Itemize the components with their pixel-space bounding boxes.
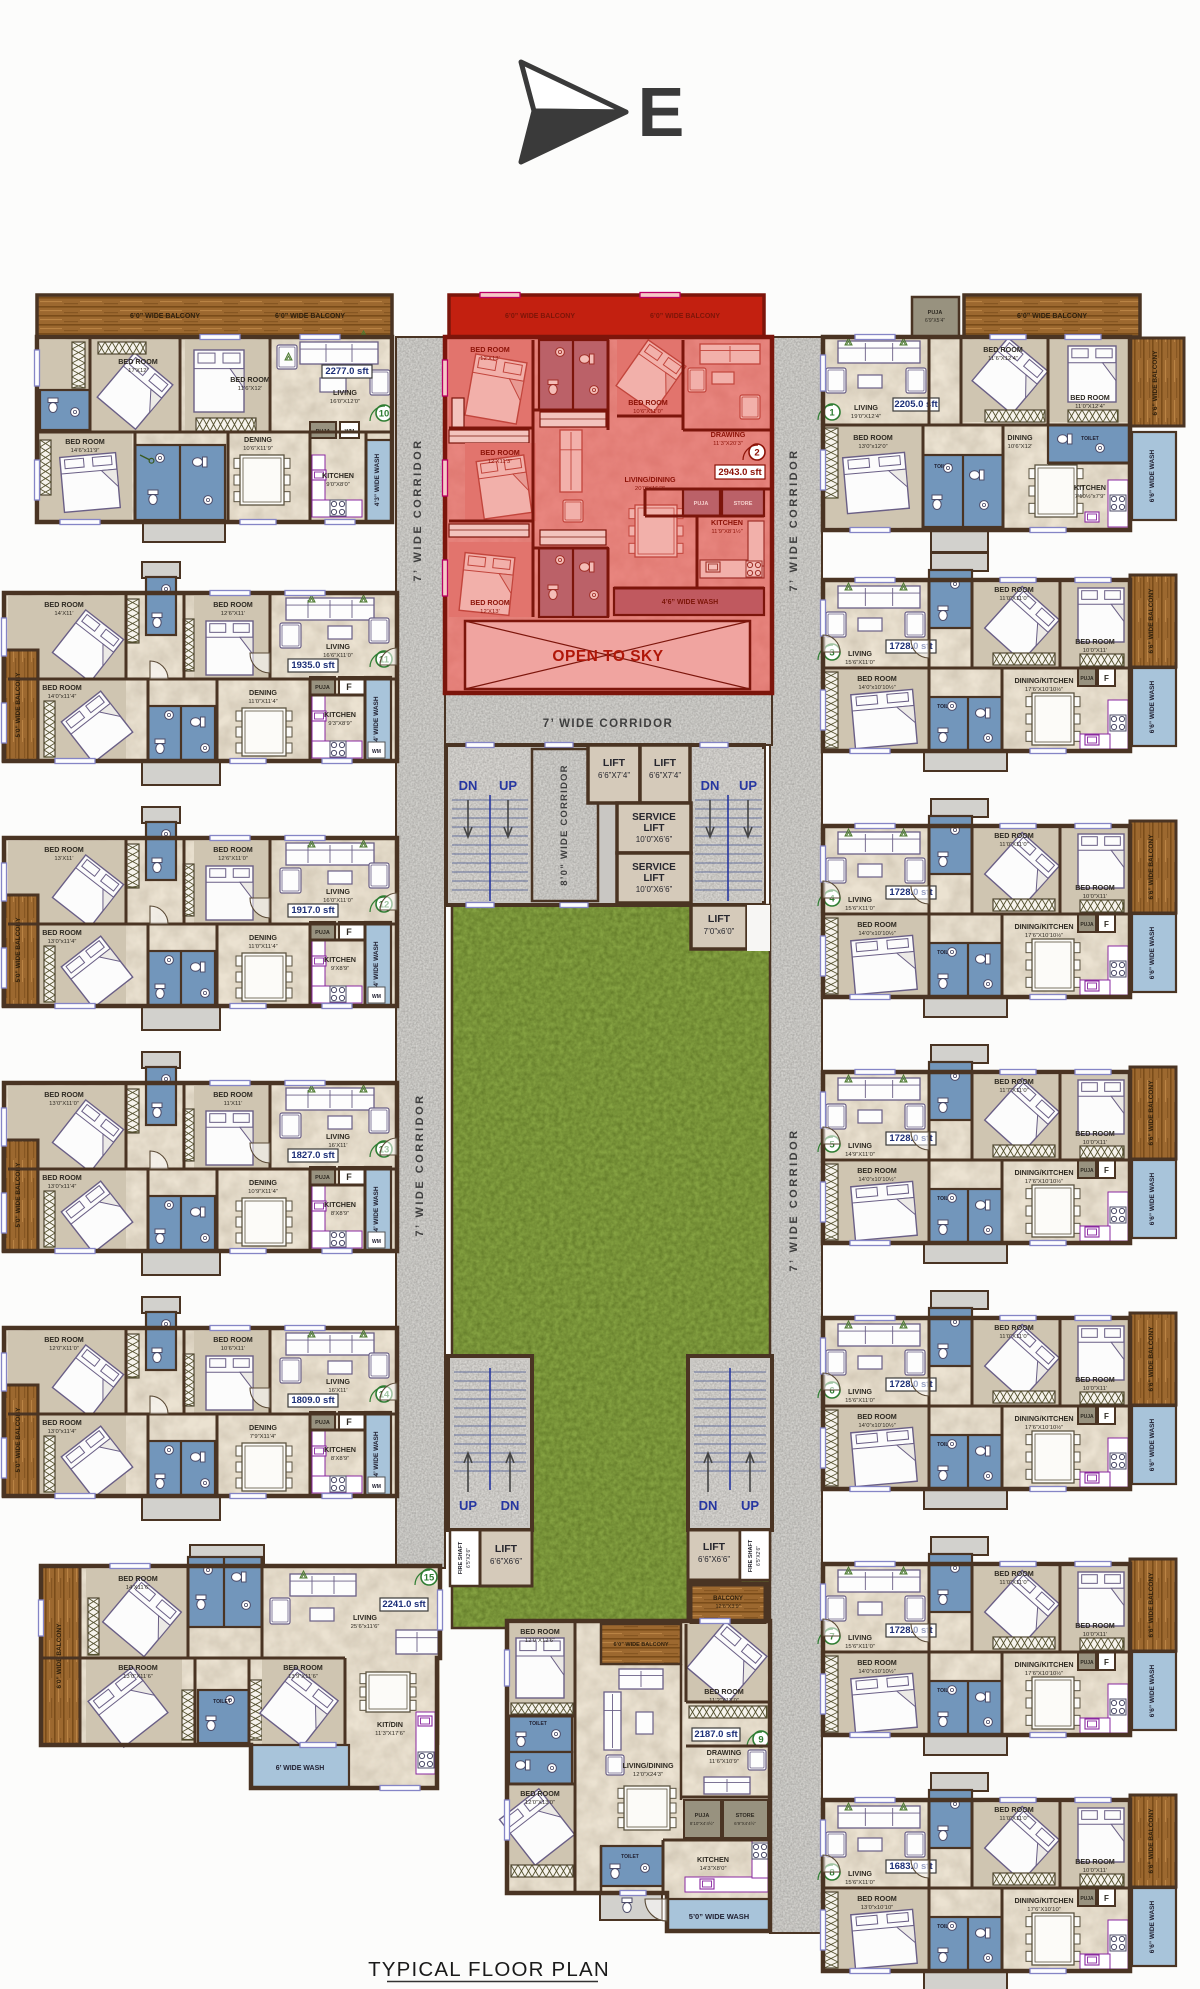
svg-text:BED ROOM: BED ROOM — [857, 1894, 897, 1903]
svg-text:LIVING: LIVING — [848, 895, 872, 904]
svg-text:14’0”x10’10½”: 14’0”x10’10½” — [858, 1668, 895, 1675]
svg-text:17’6”X10’10½”: 17’6”X10’10½” — [1025, 932, 1063, 939]
svg-text:5’0” WIDE WASH: 5’0” WIDE WASH — [689, 1912, 749, 1921]
svg-text:STORE: STORE — [734, 501, 753, 507]
svg-text:10’0”X11’: 10’0”X11’ — [1083, 1140, 1107, 1146]
svg-text:11’0”X11’0”: 11’0”X11’0” — [999, 1334, 1028, 1340]
svg-text:BALCONY: BALCONY — [713, 1596, 743, 1602]
svg-text:7’10½”x7’9”: 7’10½”x7’9” — [1075, 493, 1106, 500]
svg-text:TOILET: TOILET — [621, 1854, 639, 1860]
svg-text:10’9”X11’4”: 10’9”X11’4” — [248, 1189, 278, 1195]
svg-text:BED ROOM: BED ROOM — [470, 598, 510, 607]
svg-text:12’0”X12’6”: 12’0”X12’6” — [525, 1638, 555, 1644]
svg-text:11’3”X17’6”: 11’3”X17’6” — [375, 1731, 405, 1737]
svg-text:PUJA: PUJA — [1080, 1660, 1094, 1666]
svg-text:10’0”X11’: 10’0”X11’ — [1083, 1632, 1107, 1638]
svg-text:6’0” WIDE BALCONY: 6’0” WIDE BALCONY — [1017, 313, 1087, 320]
svg-text:6’6” WIDE WASH: 6’6” WIDE WASH — [1149, 1173, 1156, 1226]
svg-text:5’0” WIDE BALCONY: 5’0” WIDE BALCONY — [15, 672, 22, 738]
svg-text:12’0”X24’3”: 12’0”X24’3” — [633, 1772, 663, 1778]
svg-text:BED ROOM: BED ROOM — [994, 1805, 1034, 1814]
svg-text:1809.0 sft: 1809.0 sft — [291, 1395, 335, 1406]
svg-text:13’0”x12’0”: 13’0”x12’0” — [858, 444, 887, 450]
svg-text:6’5”X2’6”: 6’5”X2’6” — [756, 1546, 762, 1566]
svg-text:PUJA: PUJA — [315, 1175, 330, 1181]
svg-text:11’7”X11’0”: 11’7”X11’0” — [999, 1088, 1028, 1094]
svg-text:PUJA: PUJA — [928, 310, 943, 316]
svg-text:TOILET: TOILET — [213, 1699, 231, 1705]
svg-text:16’6”X11’0”: 16’6”X11’0” — [323, 653, 353, 659]
svg-text:BED ROOM: BED ROOM — [44, 600, 84, 609]
svg-text:UP: UP — [739, 778, 757, 793]
svg-text:BED ROOM: BED ROOM — [857, 920, 897, 929]
svg-text:BED ROOM: BED ROOM — [994, 1077, 1034, 1086]
svg-text:11’3”X20’3”: 11’3”X20’3” — [713, 441, 743, 447]
svg-text:BED ROOM: BED ROOM — [470, 345, 510, 354]
svg-text:BED ROOM: BED ROOM — [42, 683, 82, 692]
svg-text:2241.0 sft: 2241.0 sft — [382, 1599, 426, 1610]
svg-text:15’6”X11’0”: 15’6”X11’0” — [845, 1644, 875, 1650]
svg-text:BED ROOM: BED ROOM — [983, 345, 1023, 354]
svg-text:BED ROOM: BED ROOM — [44, 845, 84, 854]
svg-text:PUJA: PUJA — [1080, 676, 1094, 682]
svg-text:6’0” WIDE BALCONY: 6’0” WIDE BALCONY — [613, 1642, 668, 1648]
svg-text:LIFT: LIFT — [495, 1543, 518, 1555]
svg-text:BED ROOM: BED ROOM — [1075, 1129, 1115, 1138]
svg-text:KITCHEN: KITCHEN — [324, 1200, 356, 1209]
svg-text:LIVING: LIVING — [848, 1141, 872, 1150]
svg-text:WM: WM — [372, 749, 381, 755]
svg-text:LIVING: LIVING — [848, 1387, 872, 1396]
svg-text:LIVING: LIVING — [326, 642, 350, 651]
svg-text:UP: UP — [459, 1498, 477, 1513]
svg-text:KITCHEN: KITCHEN — [324, 955, 356, 964]
svg-text:17’X12’: 17’X12’ — [128, 368, 148, 374]
svg-text:DENING: DENING — [249, 1178, 277, 1187]
svg-text:4’3” WIDE WASH: 4’3” WIDE WASH — [374, 454, 381, 507]
svg-text:E: E — [638, 73, 685, 151]
svg-text:6’6”X6’6”: 6’6”X6’6” — [490, 1557, 522, 1566]
svg-text:TOILET: TOILET — [529, 1721, 547, 1727]
svg-text:6’0” WIDE BALCONY: 6’0” WIDE BALCONY — [275, 313, 345, 320]
svg-text:PUJA: PUJA — [1080, 1168, 1094, 1174]
svg-text:BED ROOM: BED ROOM — [1075, 883, 1115, 892]
svg-text:10’0”X6’6”: 10’0”X6’6” — [636, 885, 673, 894]
svg-text:BED ROOM: BED ROOM — [1070, 393, 1110, 402]
svg-text:6’0” WIDE BALCONY: 6’0” WIDE BALCONY — [650, 313, 720, 320]
svg-text:OPEN TO SKY: OPEN TO SKY — [552, 648, 663, 665]
svg-text:6’0” WIDE BALCONY: 6’0” WIDE BALCONY — [130, 313, 200, 320]
svg-text:WM: WM — [372, 994, 381, 1000]
svg-text:14’6”x11’9”: 14’6”x11’9” — [71, 448, 100, 454]
svg-text:25’6”x11’6”: 25’6”x11’6” — [351, 1624, 380, 1630]
svg-text:DENING: DENING — [249, 933, 277, 942]
svg-text:13’0”x11’4”: 13’0”x11’4” — [48, 939, 77, 945]
svg-text:BED ROOM: BED ROOM — [213, 600, 253, 609]
svg-text:LIFT: LIFT — [643, 873, 664, 884]
svg-text:4’ WIDE WASH: 4’ WIDE WASH — [373, 1186, 380, 1231]
svg-text:7’ WIDE CORRIDOR: 7’ WIDE CORRIDOR — [414, 1093, 426, 1236]
svg-text:PUJA: PUJA — [315, 685, 330, 691]
svg-text:DN: DN — [501, 1498, 520, 1513]
svg-text:9: 9 — [758, 1735, 763, 1746]
svg-text:6’ WIDE WASH: 6’ WIDE WASH — [276, 1765, 325, 1772]
svg-text:BED ROOM: BED ROOM — [857, 1412, 897, 1421]
svg-text:4’ WIDE WASH: 4’ WIDE WASH — [373, 696, 380, 741]
svg-text:LIVING: LIVING — [333, 388, 357, 397]
svg-text:2: 2 — [754, 448, 759, 459]
svg-text:6’6” WIDE BALCONY: 6’6” WIDE BALCONY — [1148, 1326, 1155, 1392]
svg-text:15’6”X11’0”: 15’6”X11’0” — [845, 1880, 875, 1886]
svg-text:17’6”X10’10½”: 17’6”X10’10½” — [1025, 1424, 1063, 1431]
svg-text:DINING/KITCHEN: DINING/KITCHEN — [1014, 1660, 1073, 1669]
svg-text:KITCHEN: KITCHEN — [697, 1855, 729, 1864]
svg-text:11’0”X11’0”: 11’0”X11’0” — [999, 1816, 1028, 1822]
svg-text:PUJA: PUJA — [694, 501, 709, 507]
svg-text:KITCHEN: KITCHEN — [322, 471, 354, 480]
svg-text:4’6” WIDE WASH: 4’6” WIDE WASH — [662, 599, 718, 606]
svg-text:KITCHEN: KITCHEN — [324, 710, 356, 719]
svg-text:7’9”X11’4”: 7’9”X11’4” — [250, 1434, 276, 1440]
svg-text:8’X8’9”: 8’X8’9” — [331, 1456, 349, 1462]
svg-text:11’0”X12’4”: 11’0”X12’4” — [1075, 404, 1105, 410]
svg-text:10’6”X11’9”: 10’6”X11’9” — [243, 446, 273, 452]
svg-text:WM: WM — [372, 1484, 381, 1490]
svg-text:15’6”X11’0”: 15’6”X11’0” — [845, 906, 875, 912]
svg-text:F: F — [346, 1172, 352, 1182]
svg-text:WM: WM — [372, 1239, 381, 1245]
svg-text:2187.0 sft: 2187.0 sft — [694, 1729, 738, 1740]
svg-text:11’0”X11’0”: 11’0”X11’0” — [999, 596, 1028, 602]
svg-text:14’0”x10’10½”: 14’0”x10’10½” — [858, 684, 895, 691]
svg-text:13’0”X11’0”: 13’0”X11’0” — [49, 1101, 79, 1107]
svg-text:6’6” WIDE WASH: 6’6” WIDE WASH — [1149, 927, 1156, 980]
svg-text:17’6”X10’10½”: 17’6”X10’10½” — [1025, 686, 1063, 693]
svg-text:5’0” WIDE BALCONY: 5’0” WIDE BALCONY — [15, 1162, 22, 1228]
svg-text:8’10”X4’4½”: 8’10”X4’4½” — [690, 1820, 715, 1826]
svg-text:DENING: DENING — [249, 688, 277, 697]
svg-text:LIVING/DINING: LIVING/DINING — [624, 475, 676, 484]
svg-text:10’0”X11’: 10’0”X11’ — [1083, 648, 1107, 654]
svg-text:F: F — [1104, 920, 1109, 929]
svg-text:6’0” WIDE BALCONY: 6’0” WIDE BALCONY — [505, 313, 575, 320]
svg-text:TYPICAL FLOOR PLAN: TYPICAL FLOOR PLAN — [368, 1958, 610, 1981]
svg-text:11’0”X11’0”: 11’0”X11’0” — [999, 842, 1028, 848]
svg-text:5’0” WIDE BALCONY: 5’0” WIDE BALCONY — [15, 917, 22, 983]
svg-text:17’6”X10’10½”: 17’6”X10’10½” — [1025, 1178, 1063, 1185]
svg-text:FIRE SHAFT: FIRE SHAFT — [458, 1541, 464, 1574]
svg-text:DINING/KITCHEN: DINING/KITCHEN — [1014, 1168, 1073, 1177]
svg-text:13’0”x11’4”: 13’0”x11’4” — [48, 1429, 77, 1435]
svg-text:6’9”X5’4”: 6’9”X5’4” — [925, 318, 945, 324]
svg-text:DRAWING: DRAWING — [707, 1748, 742, 1757]
svg-text:14’3”X8’0”: 14’3”X8’0” — [700, 1866, 727, 1872]
svg-text:TOILET: TOILET — [1081, 436, 1099, 442]
svg-text:BED ROOM: BED ROOM — [994, 1569, 1034, 1578]
svg-text:7’ WIDE CORRIDOR: 7’ WIDE CORRIDOR — [412, 438, 424, 581]
svg-text:12’X11’3”: 12’X11’3” — [488, 459, 512, 465]
svg-text:F: F — [346, 682, 352, 692]
svg-text:PUJA: PUJA — [1080, 1896, 1094, 1902]
svg-text:13’9”X11’6”: 13’9”X11’6” — [288, 1674, 318, 1680]
svg-text:6’6” WIDE WASH: 6’6” WIDE WASH — [1149, 450, 1156, 503]
svg-text:PUJA: PUJA — [695, 1813, 710, 1819]
svg-text:LIFT: LIFT — [603, 757, 626, 769]
svg-text:17’6”X10’10”: 17’6”X10’10” — [1027, 1907, 1060, 1913]
svg-text:2205.0 sft: 2205.0 sft — [894, 399, 938, 410]
svg-text:DINING: DINING — [1007, 433, 1033, 442]
svg-text:19’0”X12’4”: 19’0”X12’4” — [851, 414, 881, 420]
svg-text:6’6” WIDE BALCONY: 6’6” WIDE BALCONY — [1148, 1572, 1155, 1638]
svg-text:15: 15 — [424, 1573, 435, 1584]
svg-text:BED ROOM: BED ROOM — [1075, 1857, 1115, 1866]
svg-text:14’0”x10’10½”: 14’0”x10’10½” — [858, 1176, 895, 1183]
svg-text:FIRE SHAFT: FIRE SHAFT — [748, 1539, 754, 1572]
svg-text:6’6” WIDE BALCONY: 6’6” WIDE BALCONY — [1148, 588, 1155, 654]
svg-text:DENING: DENING — [244, 435, 272, 444]
svg-text:5’0” WIDE BALCONY: 5’0” WIDE BALCONY — [15, 1407, 22, 1473]
svg-text:PUJA: PUJA — [315, 930, 330, 936]
svg-text:12’6”X11’0”: 12’6”X11’0” — [218, 856, 248, 862]
svg-text:LIFT: LIFT — [708, 913, 731, 925]
svg-text:17’6”X10’10½”: 17’6”X10’10½” — [1025, 1670, 1063, 1677]
svg-text:DINING/KITCHEN: DINING/KITCHEN — [1014, 676, 1073, 685]
svg-text:7’ WIDE CORRIDOR: 7’ WIDE CORRIDOR — [543, 718, 673, 730]
svg-text:LIFT: LIFT — [643, 823, 664, 834]
svg-text:11’6”X12’4”: 11’6”X12’4” — [988, 356, 1018, 362]
svg-text:6’0” WIDE BALCONY: 6’0” WIDE BALCONY — [56, 1623, 63, 1689]
svg-text:BED ROOM: BED ROOM — [857, 1658, 897, 1667]
svg-text:12’0”X13’0”: 12’0”X13’0” — [525, 1800, 555, 1806]
svg-text:F: F — [1104, 1658, 1109, 1667]
svg-text:13’X11’: 13’X11’ — [54, 856, 73, 862]
svg-text:6’6” WIDE BALCONY: 6’6” WIDE BALCONY — [1152, 350, 1159, 416]
svg-text:14’9”X11’0”: 14’9”X11’0” — [845, 1152, 875, 1158]
svg-text:BED ROOM: BED ROOM — [213, 1090, 253, 1099]
svg-text:DINING/KITCHEN: DINING/KITCHEN — [1014, 1896, 1073, 1905]
svg-text:BED ROOM: BED ROOM — [283, 1663, 323, 1672]
svg-text:13’0”X11’6”: 13’0”X11’6” — [123, 1674, 153, 1680]
svg-text:SERVICE: SERVICE — [632, 862, 676, 873]
svg-text:LIFT: LIFT — [654, 757, 677, 769]
svg-text:DINING/KITCHEN: DINING/KITCHEN — [1014, 1414, 1073, 1423]
svg-text:BED ROOM: BED ROOM — [1075, 637, 1115, 646]
svg-text:6’6”X7’4”: 6’6”X7’4” — [649, 771, 681, 780]
svg-text:BED ROOM: BED ROOM — [1075, 1375, 1115, 1384]
svg-text:BED ROOM: BED ROOM — [520, 1789, 560, 1798]
svg-text:6’6” WIDE WASH: 6’6” WIDE WASH — [1149, 1419, 1156, 1472]
svg-text:PUJA: PUJA — [315, 1420, 330, 1426]
svg-text:PUJA: PUJA — [1080, 1414, 1094, 1420]
svg-text:DINING/KITCHEN: DINING/KITCHEN — [1014, 922, 1073, 931]
svg-text:12’0”X11’0”: 12’0”X11’0” — [49, 1346, 79, 1352]
svg-text:1935.0 sft: 1935.0 sft — [291, 660, 335, 671]
svg-text:DN: DN — [459, 778, 478, 793]
svg-text:BED ROOM: BED ROOM — [44, 1335, 84, 1344]
svg-text:KIT/DIN: KIT/DIN — [377, 1720, 403, 1729]
svg-text:STORE: STORE — [736, 1813, 755, 1819]
svg-text:11’0”X11’4”: 11’0”X11’4” — [248, 699, 277, 705]
svg-text:14’X11’: 14’X11’ — [54, 611, 73, 617]
svg-text:BED ROOM: BED ROOM — [628, 398, 668, 407]
svg-text:LIVING: LIVING — [848, 1633, 872, 1642]
svg-text:11’6”X10’9”: 11’6”X10’9” — [709, 1759, 739, 1765]
svg-text:12’X13’: 12’X13’ — [480, 356, 500, 362]
svg-text:BED ROOM: BED ROOM — [994, 1323, 1034, 1332]
svg-text:UP: UP — [741, 1498, 759, 1513]
svg-text:2943.0 sft: 2943.0 sft — [718, 467, 762, 478]
svg-text:1827.0 sft: 1827.0 sft — [291, 1150, 335, 1161]
svg-text:13’0”x11’4”: 13’0”x11’4” — [48, 1184, 77, 1190]
svg-text:BED ROOM: BED ROOM — [65, 437, 105, 446]
svg-text:BED ROOM: BED ROOM — [994, 585, 1034, 594]
svg-text:DENING: DENING — [249, 1423, 277, 1432]
svg-text:7’0”x6’0”: 7’0”x6’0” — [704, 927, 735, 936]
svg-text:DN: DN — [699, 1498, 718, 1513]
svg-text:BED ROOM: BED ROOM — [857, 674, 897, 683]
svg-text:6’9”X4’4½”: 6’9”X4’4½” — [734, 1820, 756, 1826]
svg-text:8’X8’9”: 8’X8’9” — [331, 1211, 349, 1217]
svg-text:LIVING: LIVING — [353, 1613, 377, 1622]
svg-text:BED ROOM: BED ROOM — [853, 433, 893, 442]
svg-text:12’6”X11’: 12’6”X11’ — [221, 611, 245, 617]
svg-text:KITCHEN: KITCHEN — [324, 1445, 356, 1454]
svg-text:14’0”x10’10½”: 14’0”x10’10½” — [858, 930, 895, 937]
svg-text:16’0”X12’0”: 16’0”X12’0” — [330, 399, 360, 405]
svg-text:LIVING: LIVING — [326, 1377, 350, 1386]
svg-text:BED ROOM: BED ROOM — [213, 1335, 253, 1344]
svg-text:BED ROOM: BED ROOM — [480, 448, 520, 457]
svg-text:10’6”X11’0”: 10’6”X11’0” — [633, 409, 663, 415]
svg-text:6’6”X6’6”: 6’6”X6’6” — [698, 1555, 730, 1564]
svg-text:14’0”x10’10½”: 14’0”x10’10½” — [858, 1422, 895, 1429]
svg-text:6’6” WIDE BALCONY: 6’6” WIDE BALCONY — [1148, 834, 1155, 900]
svg-text:LIFT: LIFT — [703, 1541, 726, 1553]
svg-text:F: F — [346, 927, 352, 937]
svg-text:10’6”X11’: 10’6”X11’ — [221, 1346, 245, 1352]
svg-text:11’X11’: 11’X11’ — [224, 1101, 243, 1107]
svg-text:10’0”X6’6”: 10’0”X6’6” — [636, 835, 673, 844]
svg-text:6’6” WIDE WASH: 6’6” WIDE WASH — [1149, 1901, 1156, 1954]
svg-text:9’0”X8’0”: 9’0”X8’0” — [326, 482, 350, 488]
svg-text:10: 10 — [379, 409, 390, 420]
svg-text:16’X11’: 16’X11’ — [328, 1143, 347, 1149]
svg-text:9’3”X8’9”: 9’3”X8’9” — [328, 721, 352, 727]
svg-text:BED ROOM: BED ROOM — [118, 1574, 158, 1583]
svg-text:2277.0 sft: 2277.0 sft — [325, 366, 369, 377]
svg-text:BED ROOM: BED ROOM — [704, 1687, 744, 1696]
svg-text:8’0” WIDE CORRIDOR: 8’0” WIDE CORRIDOR — [559, 764, 570, 885]
svg-text:LIVING: LIVING — [854, 403, 878, 412]
svg-text:BED ROOM: BED ROOM — [42, 1418, 82, 1427]
svg-text:7’ WIDE CORRIDOR: 7’ WIDE CORRIDOR — [788, 448, 800, 591]
svg-text:7’ WIDE CORRIDOR: 7’ WIDE CORRIDOR — [788, 1128, 800, 1271]
svg-text:11’9”X8’1½”: 11’9”X8’1½” — [711, 528, 742, 535]
svg-text:BED ROOM: BED ROOM — [118, 357, 158, 366]
svg-text:6’5”X2’6”: 6’5”X2’6” — [466, 1548, 472, 1568]
svg-text:10’0”X11’: 10’0”X11’ — [1083, 1386, 1107, 1392]
svg-text:14’0”x11’4”: 14’0”x11’4” — [48, 694, 77, 700]
svg-text:4’ WIDE WASH: 4’ WIDE WASH — [373, 1431, 380, 1476]
svg-text:BED ROOM: BED ROOM — [994, 831, 1034, 840]
svg-text:F: F — [1104, 1166, 1109, 1175]
svg-text:BED ROOM: BED ROOM — [230, 375, 270, 384]
svg-text:F: F — [346, 1417, 352, 1427]
svg-text:12’6”X3’9”: 12’6”X3’9” — [715, 1604, 740, 1610]
svg-text:4’ WIDE WASH: 4’ WIDE WASH — [373, 941, 380, 986]
svg-text:DN: DN — [701, 778, 720, 793]
svg-text:BED ROOM: BED ROOM — [857, 1166, 897, 1175]
svg-text:9’X8’9”: 9’X8’9” — [331, 966, 349, 972]
svg-text:BED ROOM: BED ROOM — [520, 1627, 560, 1636]
svg-text:UP: UP — [499, 778, 517, 793]
svg-text:12’X13’: 12’X13’ — [480, 609, 500, 615]
svg-text:F: F — [1104, 674, 1109, 683]
svg-text:14’X11’6”: 14’X11’6” — [126, 1585, 150, 1591]
svg-text:LIVING: LIVING — [326, 887, 350, 896]
svg-text:1917.0 sft: 1917.0 sft — [291, 905, 335, 916]
svg-text:11’0”X11’4”: 11’0”X11’4” — [248, 944, 277, 950]
svg-text:6’6” WIDE BALCONY: 6’6” WIDE BALCONY — [1148, 1080, 1155, 1146]
svg-text:10’0”X11’: 10’0”X11’ — [1083, 894, 1107, 900]
svg-text:LIVING/DINING: LIVING/DINING — [622, 1761, 674, 1770]
svg-text:KITCHEN: KITCHEN — [1074, 483, 1106, 492]
svg-text:13’0”x10’10”: 13’0”x10’10” — [861, 1905, 893, 1911]
svg-text:6’6” WIDE WASH: 6’6” WIDE WASH — [1149, 681, 1156, 734]
svg-text:BED ROOM: BED ROOM — [1075, 1621, 1115, 1630]
svg-text:SERVICE: SERVICE — [632, 812, 676, 823]
svg-text:15’6”X11’0”: 15’6”X11’0” — [845, 660, 875, 666]
svg-text:11’6”X12’: 11’6”X12’ — [238, 386, 262, 392]
svg-text:6’6” WIDE BALCONY: 6’6” WIDE BALCONY — [1148, 1808, 1155, 1874]
svg-text:16’0”X11’0”: 16’0”X11’0” — [323, 898, 353, 904]
svg-text:BED ROOM: BED ROOM — [42, 1173, 82, 1182]
svg-text:6’6” WIDE WASH: 6’6” WIDE WASH — [1149, 1665, 1156, 1718]
svg-text:6’6”X7’4”: 6’6”X7’4” — [598, 771, 630, 780]
svg-text:10’6”X12’: 10’6”X12’ — [1008, 444, 1033, 450]
svg-text:LIVING: LIVING — [848, 1869, 872, 1878]
svg-text:KITCHEN: KITCHEN — [711, 518, 743, 527]
svg-text:11’0”X11’0”: 11’0”X11’0” — [999, 1580, 1028, 1586]
svg-text:BED ROOM: BED ROOM — [213, 845, 253, 854]
svg-text:F: F — [1104, 1894, 1109, 1903]
svg-text:LIVING: LIVING — [848, 649, 872, 658]
svg-text:PUJA: PUJA — [1080, 922, 1094, 928]
svg-text:16’X11’: 16’X11’ — [328, 1388, 347, 1394]
svg-text:10’0”X11’: 10’0”X11’ — [1083, 1868, 1107, 1874]
svg-text:BED ROOM: BED ROOM — [42, 928, 82, 937]
svg-text:BED ROOM: BED ROOM — [44, 1090, 84, 1099]
svg-text:15’6”X11’0”: 15’6”X11’0” — [845, 1398, 875, 1404]
svg-text:1: 1 — [829, 408, 835, 419]
svg-text:LIVING: LIVING — [326, 1132, 350, 1141]
svg-text:F: F — [1104, 1412, 1109, 1421]
svg-text:BED ROOM: BED ROOM — [118, 1663, 158, 1672]
